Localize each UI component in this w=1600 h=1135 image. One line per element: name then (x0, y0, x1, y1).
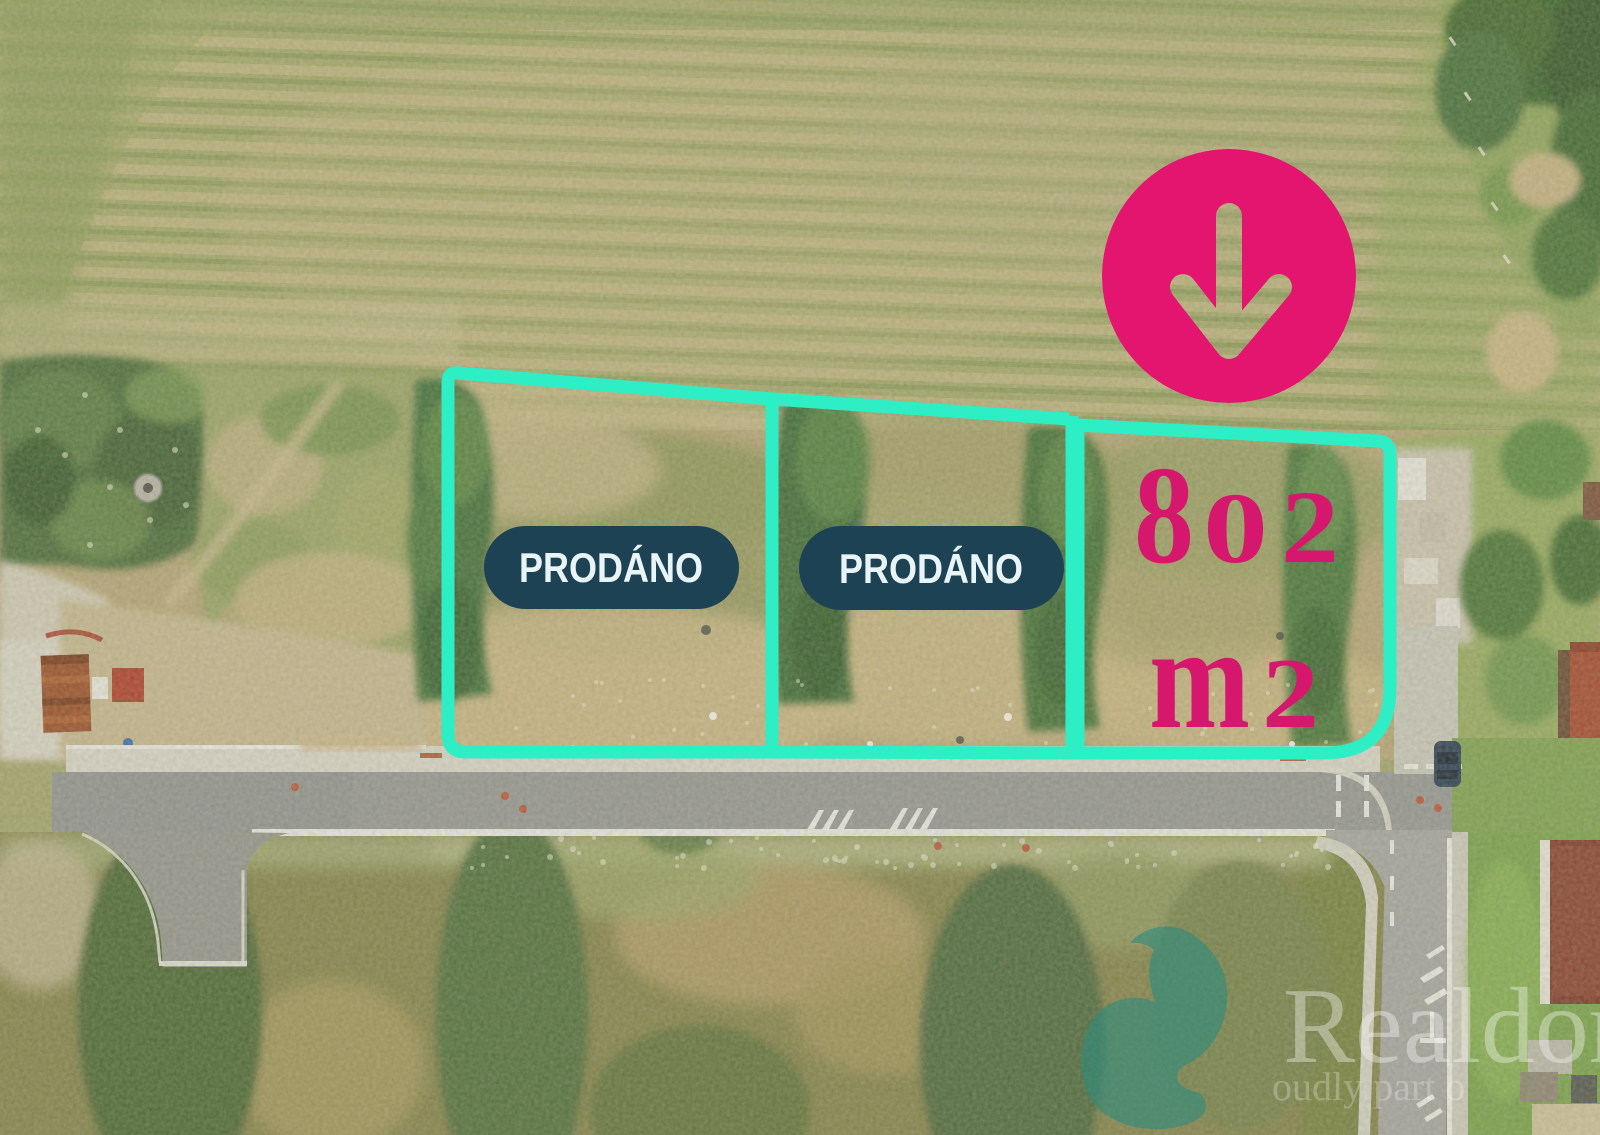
svg-text:2: 2 (1262, 637, 1319, 749)
svg-text:PRODÁNO: PRODÁNO (839, 545, 1023, 592)
svg-text:8: 8 (1134, 438, 1194, 593)
svg-text:0: 0 (1203, 472, 1268, 584)
svg-text:oudly part o: oudly part o (1272, 1064, 1465, 1109)
svg-text:m: m (1149, 596, 1250, 759)
svg-text:2: 2 (1281, 470, 1339, 585)
svg-text:PRODÁNO: PRODÁNO (519, 544, 703, 591)
